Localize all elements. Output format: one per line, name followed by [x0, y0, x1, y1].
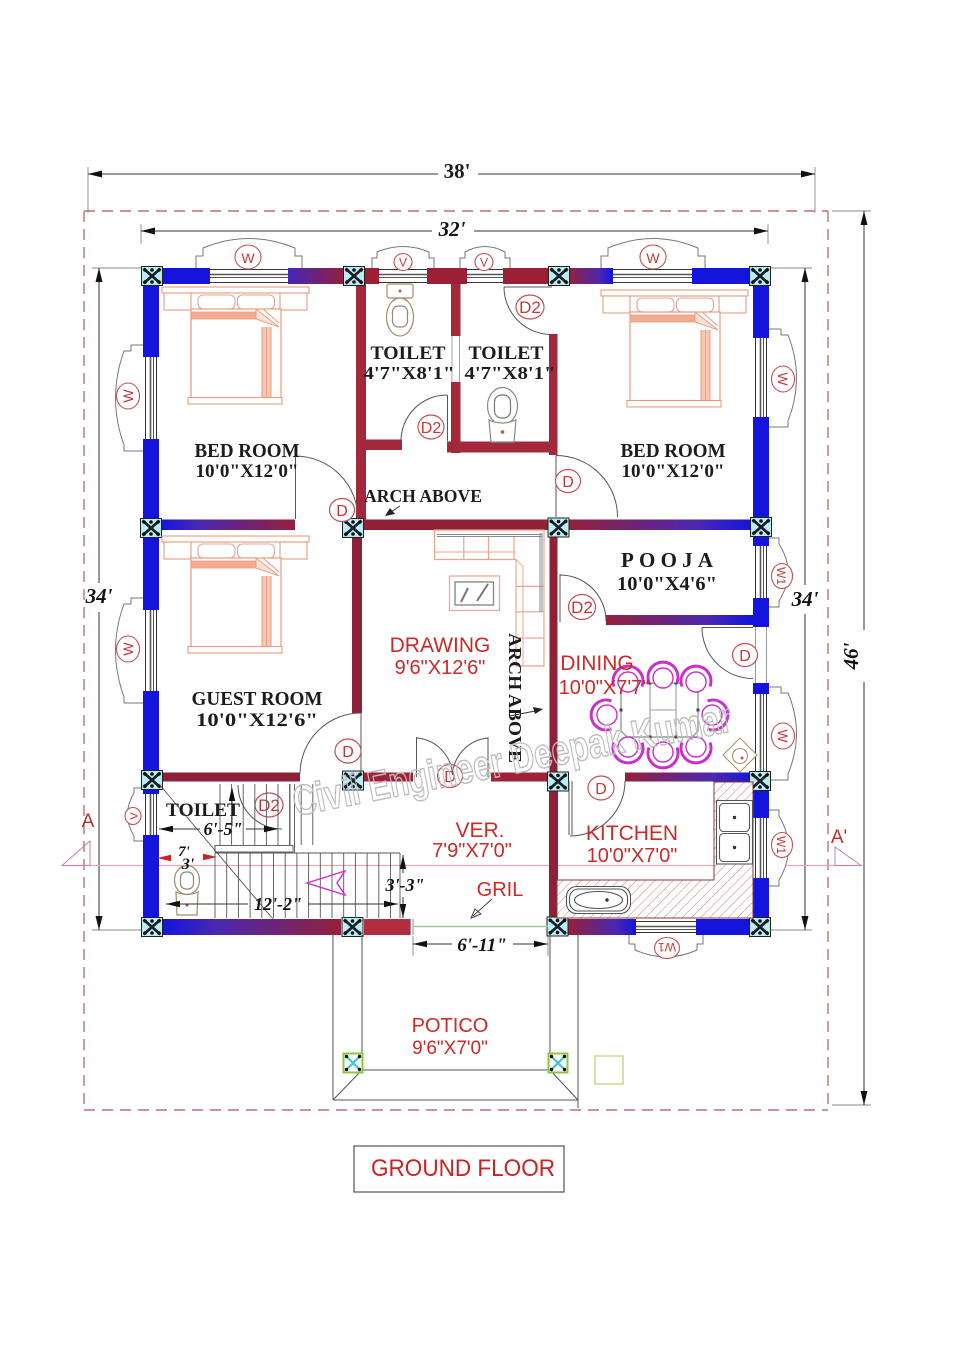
svg-text:TOILET: TOILET [469, 343, 544, 364]
svg-text:3'-3": 3'-3" [385, 875, 425, 895]
svg-text:TOILET: TOILET [371, 343, 446, 364]
svg-text:GUEST ROOM: GUEST ROOM [192, 688, 323, 710]
svg-text:KITCHEN: KITCHEN [586, 822, 678, 845]
svg-text:V: V [129, 812, 141, 820]
svg-text:10'0"X12'0": 10'0"X12'0" [196, 461, 299, 482]
svg-text:46': 46' [839, 642, 863, 670]
svg-text:GROUND FLOOR: GROUND FLOOR [371, 1155, 555, 1182]
svg-text:32': 32' [438, 217, 466, 241]
svg-text:TOILET: TOILET [166, 800, 240, 821]
svg-text:D2: D2 [571, 598, 593, 617]
svg-text:4'7"X8'1": 4'7"X8'1" [465, 363, 556, 383]
svg-text:10'0"X12'0": 10'0"X12'0" [622, 461, 725, 482]
svg-text:D: D [739, 648, 751, 665]
svg-text:6'-5": 6'-5" [204, 819, 243, 839]
svg-text:DRAWING: DRAWING [390, 634, 491, 657]
svg-text:W: W [775, 729, 791, 743]
svg-text:D: D [562, 474, 574, 491]
svg-text:D: D [336, 503, 348, 520]
svg-text:A: A [82, 811, 95, 832]
svg-text:DINING: DINING [560, 652, 634, 675]
svg-text:10'0"X7'0": 10'0"X7'0" [587, 845, 678, 867]
svg-text:4'7"X8'1": 4'7"X8'1" [364, 363, 455, 383]
svg-text:W: W [120, 389, 136, 403]
svg-text:D: D [342, 744, 354, 761]
svg-text:V: V [480, 256, 488, 270]
svg-text:34': 34' [85, 584, 113, 608]
svg-text:12'-2": 12'-2" [254, 894, 302, 914]
svg-text:W1: W1 [774, 836, 788, 854]
svg-text:6'-11": 6'-11" [457, 935, 507, 956]
svg-text:POTICO: POTICO [412, 1015, 489, 1037]
svg-text:W: W [646, 250, 660, 266]
svg-text:GRIL: GRIL [477, 879, 524, 901]
svg-text:10'0"X4'6": 10'0"X4'6" [617, 573, 717, 595]
svg-text:9'6"X7'0": 9'6"X7'0" [412, 1038, 488, 1059]
svg-text:W: W [241, 250, 255, 266]
svg-text:D2: D2 [519, 298, 541, 317]
svg-text:D: D [595, 781, 607, 798]
svg-text:38': 38' [444, 159, 471, 183]
svg-text:3': 3' [181, 856, 195, 873]
svg-text:BED ROOM: BED ROOM [621, 440, 726, 462]
svg-text:34': 34' [791, 587, 819, 611]
svg-text:VER.: VER. [455, 819, 504, 842]
svg-text:W: W [120, 642, 136, 656]
svg-text:10'0"X12'6": 10'0"X12'6" [196, 710, 318, 731]
svg-text:A': A' [831, 827, 847, 848]
svg-text:W1: W1 [774, 567, 788, 585]
svg-text:7'9"X7'0": 7'9"X7'0" [432, 840, 512, 862]
svg-text:W1: W1 [658, 940, 676, 954]
svg-text:D2: D2 [258, 796, 280, 815]
svg-text:BED ROOM: BED ROOM [195, 440, 300, 462]
svg-text:V: V [399, 256, 407, 270]
svg-text:9'6"X12'6": 9'6"X12'6" [395, 657, 486, 679]
svg-text:W: W [775, 372, 791, 386]
svg-text:ARCH ABOVE: ARCH ABOVE [364, 486, 482, 506]
svg-text:D2: D2 [421, 420, 442, 437]
svg-text:10'0"X7'7": 10'0"X7'7" [559, 677, 650, 699]
